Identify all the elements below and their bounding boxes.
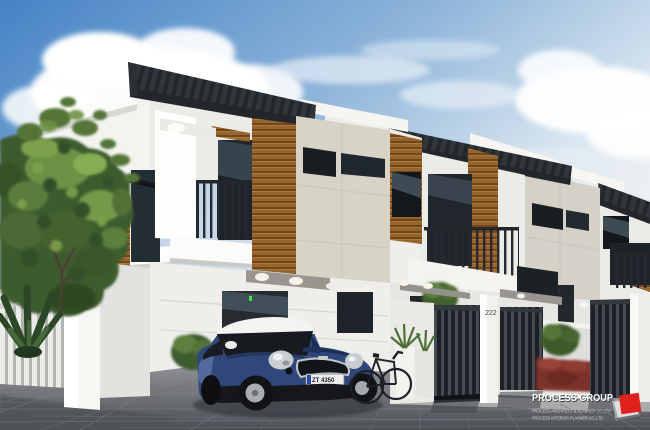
svg-text:ZT 4350: ZT 4350 [312,378,335,384]
svg-text:PROCESS INTERIOR PLANNER CO.,L: PROCESS INTERIOR PLANNER CO.,LTD. [532,416,604,421]
svg-text:PROCESS ARCHITECT & PLANNER CO: PROCESS ARCHITECT & PLANNER CO.,LTD. [532,409,612,414]
svg-text:222: 222 [485,310,497,317]
svg-text:PROCESS GROUP: PROCESS GROUP [532,393,613,404]
